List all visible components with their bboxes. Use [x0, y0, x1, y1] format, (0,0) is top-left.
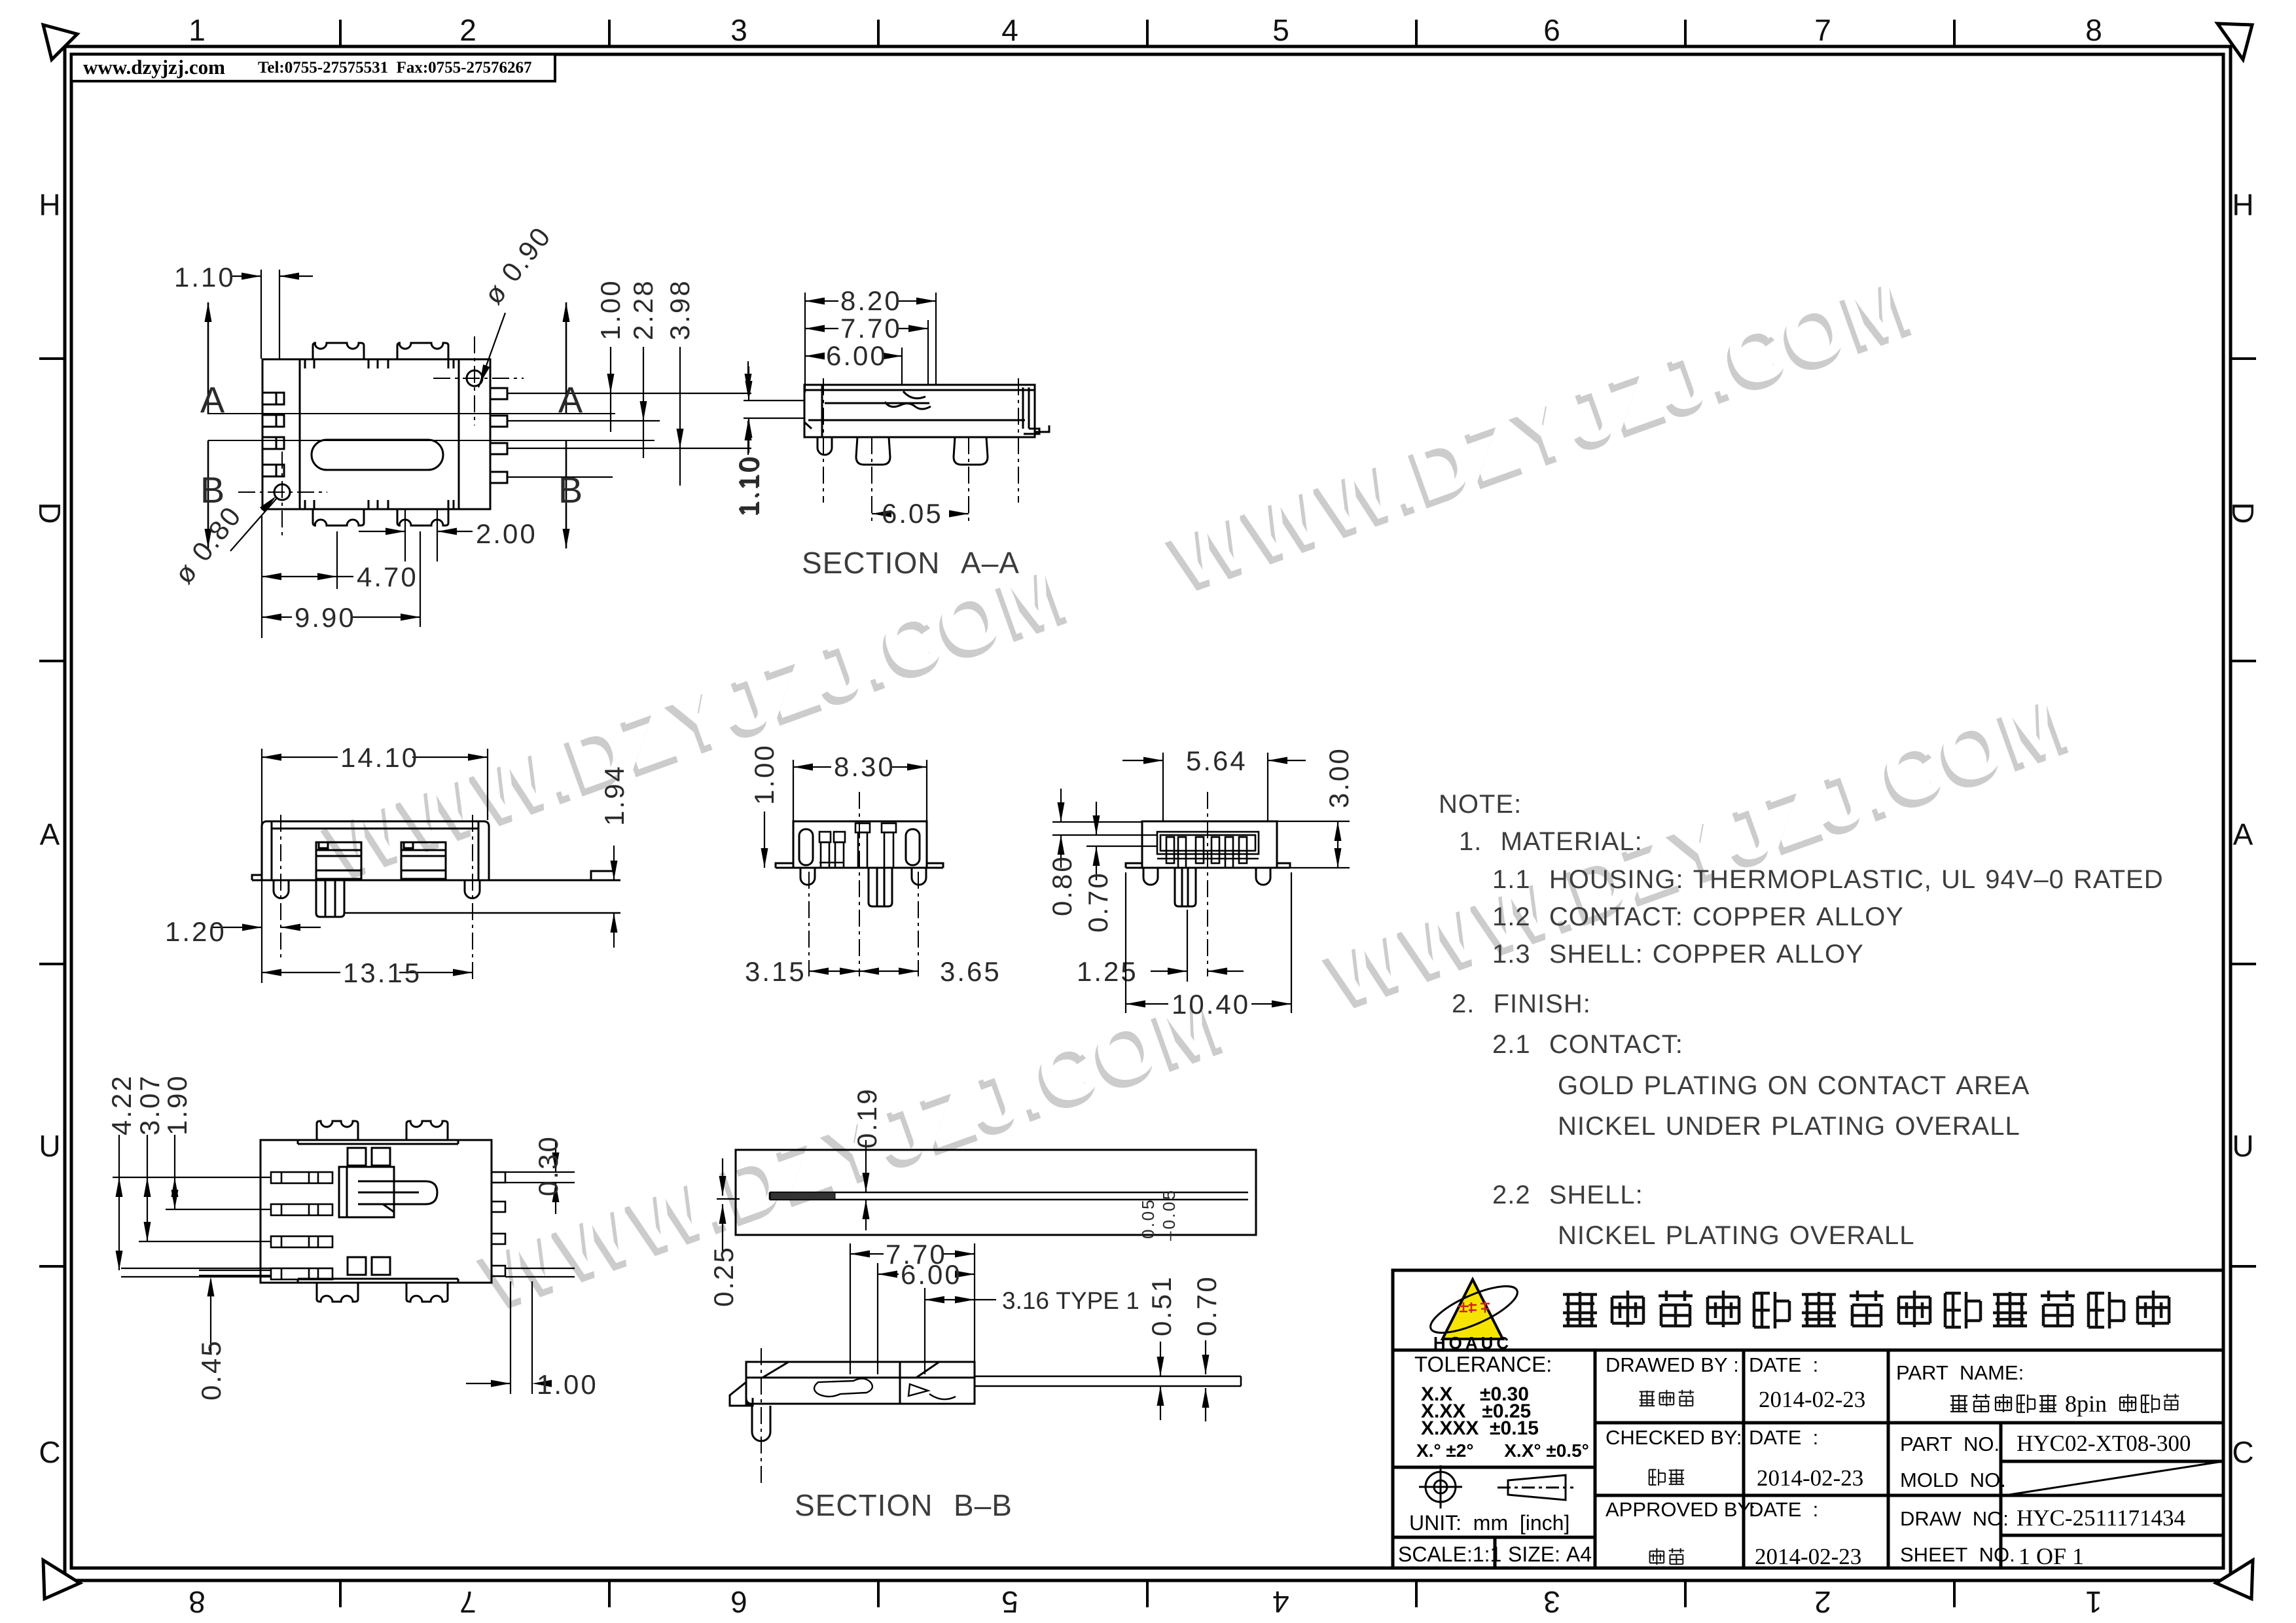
svg-text:GOLD PLATING ON CONTACT AREA: GOLD PLATING ON CONTACT AREA	[1558, 1071, 2030, 1100]
svg-text:6.00: 6.00	[826, 340, 888, 371]
svg-text:6.00: 6.00	[901, 1259, 962, 1290]
svg-text:2.00: 2.00	[476, 518, 537, 549]
svg-text:6: 6	[1543, 13, 1560, 47]
svg-text:1.10: 1.10	[174, 262, 236, 293]
svg-text:0.70: 0.70	[1083, 871, 1113, 933]
svg-text:9.90: 9.90	[295, 602, 356, 633]
svg-text:HYC02-XT08-300: HYC02-XT08-300	[2017, 1431, 2191, 1456]
svg-text:3.07: 3.07	[134, 1074, 165, 1135]
svg-text:DATE :: DATE :	[1749, 1426, 1818, 1449]
svg-text:3.65: 3.65	[940, 956, 1001, 987]
svg-text:0.45: 0.45	[196, 1339, 226, 1400]
svg-text:2: 2	[459, 13, 476, 47]
svg-text:8pin: 8pin	[2065, 1391, 2107, 1417]
svg-text:6.05: 6.05	[882, 498, 943, 529]
svg-text:0.51: 0.51	[1146, 1275, 1177, 1336]
svg-text:5: 5	[1272, 13, 1289, 47]
svg-text:D: D	[2226, 502, 2260, 524]
svg-text:2014-02-23: 2014-02-23	[1755, 1544, 1861, 1569]
svg-text:3.16 TYPE 1: 3.16 TYPE 1	[1002, 1287, 1139, 1314]
svg-text:1.00: 1.00	[595, 279, 626, 340]
svg-text:2.1 CONTACT:: 2.1 CONTACT:	[1492, 1030, 1683, 1059]
svg-text:2.2 SHELL:: 2.2 SHELL:	[1492, 1181, 1643, 1209]
svg-text:1.10: 1.10	[734, 454, 765, 516]
svg-text:8: 8	[2085, 13, 2102, 47]
svg-text:4.70: 4.70	[357, 562, 418, 592]
svg-text:6: 6	[730, 1585, 747, 1619]
svg-text:1: 1	[188, 13, 206, 47]
svg-text:NOTE:: NOTE:	[1439, 790, 1522, 819]
svg-text:2.28: 2.28	[628, 279, 658, 340]
svg-text:1.00: 1.00	[749, 743, 780, 805]
svg-text:PART NO.: PART NO.	[1900, 1433, 2000, 1455]
svg-text:UNIT: mm [inch]: UNIT: mm [inch]	[1409, 1511, 1570, 1535]
svg-text:3.15: 3.15	[745, 956, 806, 987]
svg-text:2: 2	[1814, 1585, 1831, 1619]
svg-text:7: 7	[459, 1585, 476, 1619]
svg-text:Tel:0755-27575531 Fax:0755-27: Tel:0755-27575531 Fax:0755-27576267	[258, 59, 532, 77]
svg-text:13.15: 13.15	[343, 957, 422, 988]
svg-text:A: A	[200, 379, 226, 420]
svg-text:X.XXX ±0.15: X.XXX ±0.15	[1421, 1418, 1539, 1439]
svg-text:C: C	[2232, 1435, 2253, 1469]
svg-text:U: U	[39, 1129, 60, 1163]
svg-text:1. MATERIAL:: 1. MATERIAL:	[1459, 827, 1643, 856]
svg-text:7.70: 7.70	[840, 313, 902, 344]
svg-text:PART NAME:: PART NAME:	[1896, 1361, 2024, 1384]
svg-text:www.dzyjzj.com: www.dzyjzj.com	[83, 56, 225, 79]
svg-text:3.00: 3.00	[1323, 747, 1354, 808]
svg-text:1.3 SHELL: COPPER ALLOY: 1.3 SHELL: COPPER ALLOY	[1492, 940, 1864, 969]
svg-text:0.05: 0.05	[1138, 1198, 1158, 1239]
svg-text:C: C	[39, 1435, 60, 1469]
svg-text:D: D	[33, 502, 67, 524]
svg-text:DATE :: DATE :	[1749, 1353, 1818, 1376]
svg-text:SECTION B–B: SECTION B–B	[795, 1488, 1013, 1522]
svg-text:A: A	[2233, 817, 2253, 851]
svg-text:3: 3	[1543, 1585, 1560, 1619]
svg-text:CHECKED BY:: CHECKED BY:	[1605, 1426, 1742, 1449]
svg-text:SIZE: A4: SIZE: A4	[1508, 1543, 1592, 1566]
svg-text:4: 4	[1001, 13, 1018, 47]
svg-text:H: H	[39, 188, 60, 222]
svg-text:4.22: 4.22	[106, 1074, 137, 1135]
svg-text:HYC-2511171434: HYC-2511171434	[2017, 1505, 2185, 1531]
svg-text:1.90: 1.90	[162, 1074, 192, 1135]
svg-text:5: 5	[1001, 1585, 1018, 1619]
svg-text:SCALE:1:1: SCALE:1:1	[1398, 1543, 1501, 1566]
svg-text:4: 4	[1272, 1585, 1289, 1619]
svg-text:DRAW NO:: DRAW NO:	[1900, 1507, 2009, 1530]
svg-text:1.20: 1.20	[165, 916, 226, 947]
svg-text:1.1 HOUSING: THERMOPLASTIC, U: 1.1 HOUSING: THERMOPLASTIC, UL 94V–0 RAT…	[1492, 865, 2164, 894]
svg-text:A: A	[40, 817, 60, 851]
svg-text:DATE :: DATE :	[1749, 1498, 1818, 1521]
svg-text:3.98: 3.98	[664, 279, 695, 340]
svg-text:3: 3	[730, 13, 747, 47]
svg-text:1.94: 1.94	[599, 764, 630, 826]
svg-text:SECTION A–A: SECTION A–A	[802, 546, 1020, 580]
svg-text:1: 1	[2085, 1585, 2102, 1619]
svg-text:–0.05: –0.05	[1159, 1188, 1179, 1241]
svg-text:H: H	[2232, 188, 2253, 222]
svg-text:1.00: 1.00	[537, 1369, 598, 1400]
svg-text:U: U	[2232, 1129, 2253, 1163]
svg-text:1.2 CONTACT: COPPER ALLOY: 1.2 CONTACT: COPPER ALLOY	[1492, 902, 1904, 931]
svg-text:7: 7	[1814, 13, 1831, 47]
svg-text:B: B	[558, 469, 584, 510]
svg-text:SHEET NO.: SHEET NO.	[1900, 1543, 2015, 1566]
svg-text:8.30: 8.30	[834, 751, 895, 782]
svg-text:0.25: 0.25	[708, 1245, 739, 1307]
svg-text:1 OF 1: 1 OF 1	[2018, 1543, 2084, 1569]
svg-text:0.80: 0.80	[1047, 855, 1077, 916]
svg-text:0.30: 0.30	[533, 1135, 564, 1196]
svg-text:X.° ±2° X.X° ±0.5°: X.° ±2° X.X° ±0.5°	[1416, 1440, 1589, 1461]
svg-text:5.64: 5.64	[1186, 745, 1247, 776]
svg-text:0.70: 0.70	[1191, 1275, 1222, 1336]
svg-text:NICKEL UNDER PLATING OVERALL: NICKEL UNDER PLATING OVERALL	[1558, 1112, 2020, 1141]
svg-text:DRAWED BY :: DRAWED BY :	[1605, 1353, 1739, 1376]
svg-text:APPROVED BY:: APPROVED BY:	[1605, 1498, 1755, 1521]
svg-text:2. FINISH:: 2. FINISH:	[1452, 990, 1591, 1018]
svg-text:1.25: 1.25	[1077, 956, 1138, 987]
svg-text:2014-02-23: 2014-02-23	[1757, 1465, 1863, 1491]
svg-text:NICKEL PLATING OVERALL: NICKEL PLATING OVERALL	[1558, 1221, 1914, 1250]
svg-text:TOLERANCE:: TOLERANCE:	[1414, 1352, 1552, 1376]
svg-text:A: A	[558, 379, 584, 420]
svg-text:8: 8	[188, 1585, 206, 1619]
svg-text:10.40: 10.40	[1172, 989, 1250, 1020]
svg-text:0.19: 0.19	[852, 1087, 882, 1149]
svg-text:14.10: 14.10	[340, 742, 419, 773]
svg-text:2014-02-23: 2014-02-23	[1759, 1387, 1865, 1412]
svg-text:8.20: 8.20	[840, 285, 902, 316]
svg-text:HOAUC: HOAUC	[1433, 1333, 1512, 1353]
svg-text:MOLD NO.: MOLD NO.	[1900, 1469, 2006, 1491]
